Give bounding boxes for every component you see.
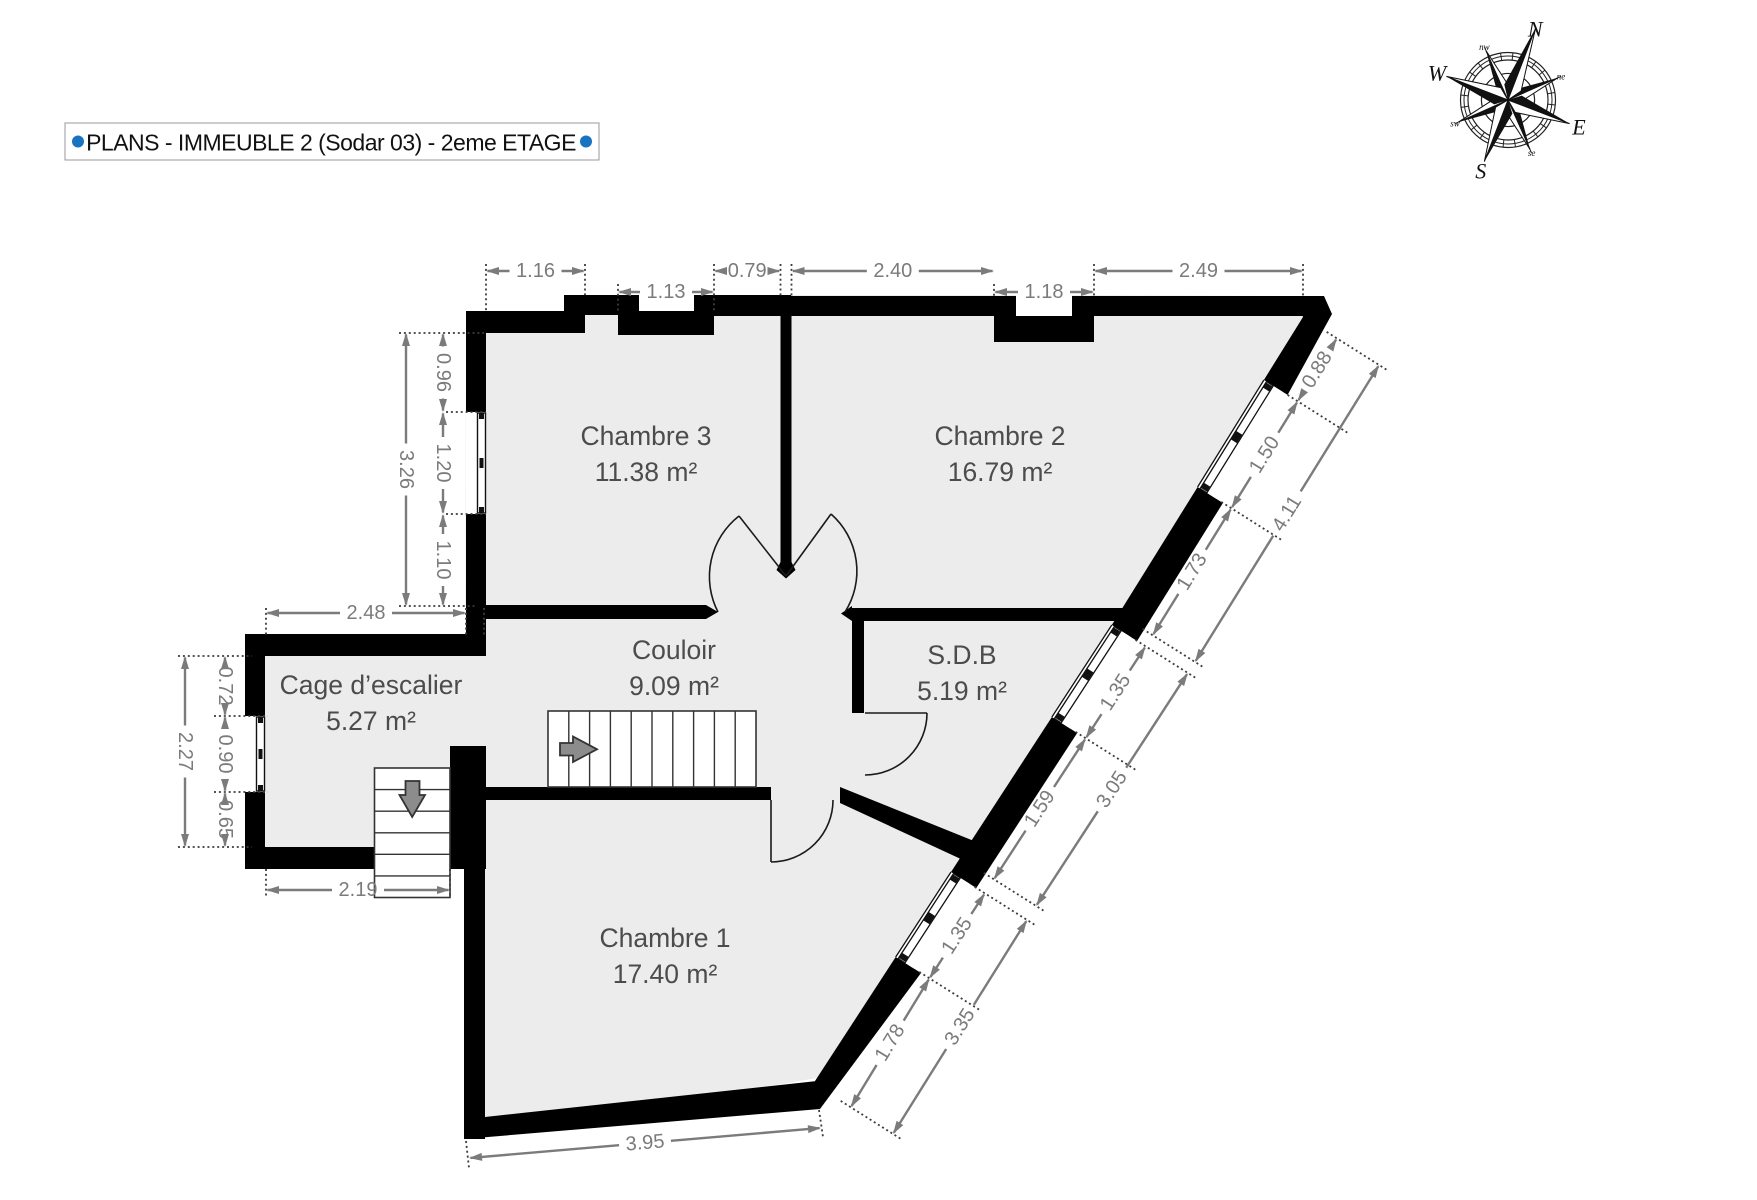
svg-text:0.65: 0.65: [214, 800, 236, 839]
svg-text:1.10: 1.10: [432, 541, 454, 580]
svg-text:16.79 m²: 16.79 m²: [948, 457, 1053, 487]
svg-text:S.D.B: S.D.B: [927, 640, 996, 670]
svg-text:3.95: 3.95: [625, 1130, 666, 1155]
svg-text:Couloir: Couloir: [632, 635, 716, 665]
svg-text:0.79: 0.79: [728, 260, 767, 282]
svg-text:E: E: [1571, 115, 1586, 140]
svg-text:0.90: 0.90: [214, 735, 236, 774]
svg-text:sw: sw: [1450, 119, 1460, 129]
svg-text:W: W: [1428, 60, 1448, 85]
svg-text:9.09 m²: 9.09 m²: [629, 671, 719, 701]
svg-text:Chambre 2: Chambre 2: [934, 421, 1065, 451]
svg-text:1.13: 1.13: [647, 281, 686, 303]
svg-text:Cage d’escalier: Cage d’escalier: [280, 670, 463, 700]
svg-text:5.19 m²: 5.19 m²: [917, 676, 1007, 706]
svg-text:2.49: 2.49: [1179, 260, 1218, 282]
svg-text:Chambre 1: Chambre 1: [599, 923, 730, 953]
svg-text:11.38 m²: 11.38 m²: [595, 457, 698, 487]
svg-text:2.48: 2.48: [347, 602, 386, 624]
svg-text:PLANS - IMMEUBLE 2 (Sodar 03): PLANS - IMMEUBLE 2 (Sodar 03) - 2eme ETA…: [86, 130, 576, 156]
svg-text:3.26: 3.26: [395, 450, 417, 489]
svg-text:S: S: [1475, 159, 1486, 184]
svg-text:2.19: 2.19: [339, 879, 378, 901]
svg-text:0.96: 0.96: [432, 353, 454, 392]
svg-text:5.27 m²: 5.27 m²: [326, 706, 416, 736]
svg-text:se: se: [1528, 148, 1536, 158]
svg-text:ne: ne: [1557, 71, 1566, 81]
svg-text:N: N: [1527, 17, 1544, 42]
svg-text:1.18: 1.18: [1025, 281, 1064, 303]
svg-text:17.40 m²: 17.40 m²: [613, 959, 718, 989]
svg-text:2.40: 2.40: [873, 260, 912, 282]
svg-text:0.72: 0.72: [214, 667, 236, 706]
svg-text:1.16: 1.16: [516, 260, 555, 282]
svg-text:1.20: 1.20: [432, 444, 454, 483]
svg-text:2.27: 2.27: [174, 732, 196, 771]
svg-text:nw: nw: [1479, 42, 1490, 52]
svg-text:Chambre 3: Chambre 3: [580, 421, 711, 451]
